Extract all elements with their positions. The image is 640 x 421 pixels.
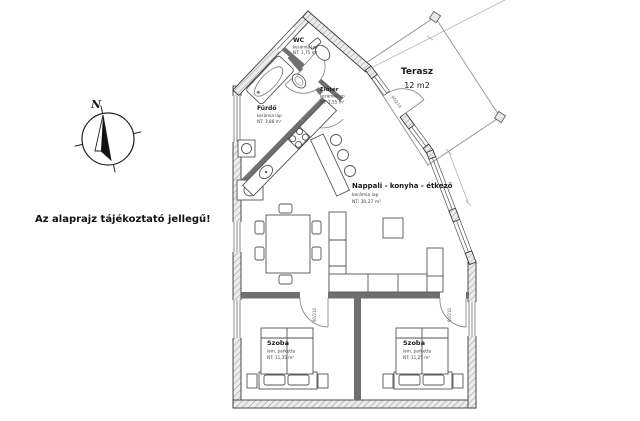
label-eloter: Előtér [320, 86, 339, 93]
door-dim-entry: 90/210 [390, 95, 403, 110]
coffee-table [383, 218, 403, 238]
svg-text:90/210: 90/210 [312, 307, 317, 322]
chair [312, 247, 321, 260]
kitchen-island [311, 134, 350, 196]
label-terasz: Terasz [401, 67, 433, 77]
door-dim-left: 90/210 [312, 307, 317, 322]
label-wc-area: NT: 1,75 m² [293, 50, 318, 55]
pillow [264, 375, 285, 385]
wall-bedrooms-top-right [466, 292, 469, 299]
nightstand [247, 374, 257, 388]
label-szoba-left: Szoba [267, 339, 289, 347]
window-bedroom-left [232, 300, 242, 338]
living-furniture [255, 204, 443, 292]
pillow [288, 375, 309, 385]
door-bedroom-right [440, 298, 466, 327]
nightstand [453, 374, 463, 388]
disclaimer-note: Az alaprajz tájékoztató jellegű! [35, 213, 211, 225]
washbasin [290, 71, 309, 90]
label-szoba-left-area: NT: 11,35 m² [267, 355, 294, 360]
washing-machine [238, 140, 255, 157]
label-furdo: Fürdő [257, 105, 276, 112]
compass: N [75, 98, 142, 172]
bar-stool [331, 135, 342, 146]
label-nappali-area: NT: 30,27 m² [352, 199, 381, 205]
label-szoba-left-floor: lam. parketta [267, 349, 296, 354]
pillow [423, 375, 444, 385]
chair [312, 221, 321, 234]
chair [255, 247, 264, 260]
label-furdo-area: NT: 3,88 m² [257, 119, 282, 124]
window-bathroom [232, 96, 242, 142]
label-eloter-floor: kerámia lap [320, 94, 345, 99]
chair [279, 275, 292, 284]
chair [279, 204, 292, 213]
pillow [399, 375, 420, 385]
svg-text:90/210: 90/210 [447, 307, 452, 322]
door-dim-right: 90/210 [447, 307, 452, 322]
label-nappali: Nappali - konyha - étkező [352, 181, 453, 190]
chair [255, 221, 264, 234]
window-bedroom-right [467, 302, 477, 336]
terrace-post [429, 11, 440, 22]
window-living [232, 222, 242, 252]
dining-table [266, 215, 310, 273]
bar-stool [338, 150, 349, 161]
label-szoba-right-floor: lam. parketta [403, 349, 432, 354]
terrace [363, 11, 506, 165]
wall-bedrooms-top-mid [328, 292, 440, 299]
label-eloter-area: NT: 2,55 m² [320, 100, 345, 105]
floor-plan-drawing: WC kerámia lap NT: 1,75 m² Fürdő kerámia… [0, 0, 640, 421]
bar-stool [345, 166, 356, 177]
label-szoba-right: Szoba [403, 339, 425, 347]
wall-bedroom-divider [354, 299, 361, 401]
nightstand [318, 374, 328, 388]
wall-bedrooms-top-left [241, 292, 300, 299]
svg-text:90/210: 90/210 [390, 95, 403, 110]
compass-north-label: N [90, 98, 102, 111]
floor-plan-page: WC kerámia lap NT: 1,75 m² Fürdő kerámia… [0, 0, 640, 421]
label-szoba-right-area: NT: 11,25 m² [403, 355, 430, 360]
nightstand [383, 374, 393, 388]
label-nappali-floor: kerámia lap [352, 191, 379, 198]
wall-bottom [233, 400, 476, 408]
label-wc: WC [293, 37, 305, 44]
label-furdo-floor: kerámia lap [257, 113, 282, 118]
label-wc-floor: kerámia lap [293, 45, 318, 50]
terrace-post [494, 111, 505, 122]
label-terasz-area: 12 m2 [404, 81, 430, 90]
